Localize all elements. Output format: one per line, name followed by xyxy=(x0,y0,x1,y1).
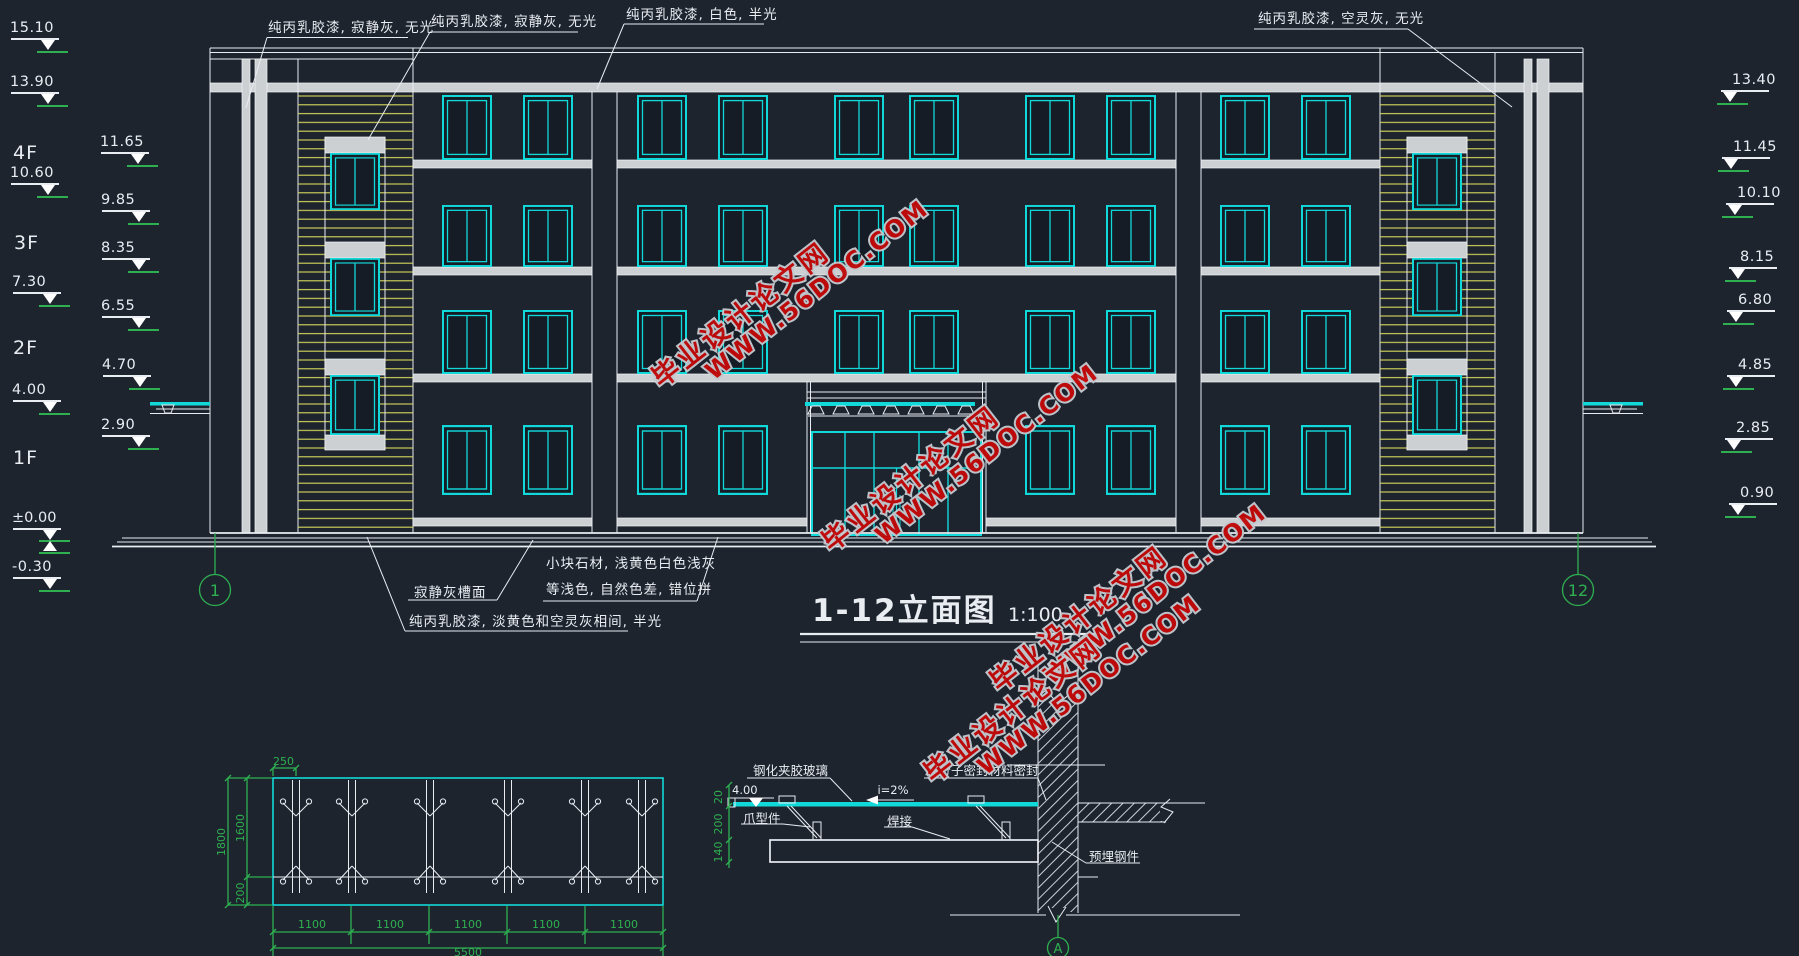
marker-value: 11.45 xyxy=(1733,139,1777,155)
marker-green-line xyxy=(1723,388,1754,390)
svg-text:250: 250 xyxy=(273,755,294,768)
marker-triangle-icon xyxy=(132,260,146,270)
marker-value: 13.90 xyxy=(10,74,54,90)
marker-green-line xyxy=(39,590,70,592)
plan-dimensions xyxy=(225,765,666,956)
elevation-marker: -0.30 xyxy=(13,577,73,611)
marker-green-line xyxy=(39,413,70,415)
marker-green-line xyxy=(37,105,68,107)
elevation-marker: 6.55 xyxy=(102,316,162,350)
marker-value: 8.15 xyxy=(1740,249,1774,265)
marker-green-line xyxy=(128,223,159,225)
marker-triangle-icon xyxy=(132,318,146,328)
marker-value: 2.90 xyxy=(101,417,135,433)
marker-triangle-icon xyxy=(43,579,57,589)
marker-value: 9.85 xyxy=(101,192,135,208)
floor-label: 3F xyxy=(14,232,39,254)
marker-green-line xyxy=(37,51,68,53)
marker-triangle-icon xyxy=(1731,505,1745,515)
elevation-marker: 6.80 xyxy=(1727,310,1787,344)
floor-label: 4F xyxy=(13,142,38,164)
floor-label-text: 2F xyxy=(13,337,38,359)
finish-label-1: 纯丙乳胶漆, 寂静灰, 无光 xyxy=(268,16,434,36)
svg-text:A: A xyxy=(1054,942,1063,956)
stair-window-strip-right xyxy=(1407,137,1467,450)
svg-text:i=2%: i=2% xyxy=(877,783,908,797)
marker-value: 4.00 xyxy=(12,382,46,398)
marker-triangle-icon xyxy=(41,40,55,50)
marker-triangle-icon xyxy=(41,185,55,195)
marker-value: 0.90 xyxy=(1740,485,1774,501)
marker-triangle-icon xyxy=(1728,205,1742,215)
elevation-marker: 2.85 xyxy=(1725,438,1785,472)
elevation-marker: 9.85 xyxy=(102,210,162,244)
svg-text:200: 200 xyxy=(712,814,725,835)
svg-text:200: 200 xyxy=(234,883,247,904)
marker-value: 11.65 xyxy=(100,134,144,150)
marker-value: 2.85 xyxy=(1736,420,1770,436)
stone-label-1: 小块石材, 浅黄色白色浅灰 xyxy=(546,552,716,572)
marker-value: 15.10 xyxy=(10,20,54,36)
marker-green-line xyxy=(127,165,158,167)
svg-text:1600: 1600 xyxy=(234,814,247,842)
marker-green-line xyxy=(39,552,70,554)
marker-value: 8.35 xyxy=(101,240,135,256)
marker-green-line xyxy=(1723,323,1754,325)
glass-label: 钢化夹胶玻璃 xyxy=(753,760,828,779)
marker-green-line xyxy=(1717,103,1748,105)
svg-text:5500: 5500 xyxy=(454,946,482,956)
marker-value: 6.80 xyxy=(1738,292,1772,308)
marker-green-line xyxy=(1722,216,1753,218)
elevation-marker: 15.10 xyxy=(11,38,71,72)
marker-triangle-icon xyxy=(1727,440,1741,450)
elevation-marker: 13.90 xyxy=(11,92,71,126)
marker-green-line xyxy=(128,448,159,450)
stair-window-strip-left xyxy=(325,137,385,450)
marker-green-line xyxy=(128,271,159,273)
marker-value: 4.85 xyxy=(1738,357,1772,373)
marker-green-line xyxy=(1718,170,1749,172)
canopy-section-detail: 20 200 140 4.00 i=2% A xyxy=(712,658,1240,956)
floor-label: 2F xyxy=(13,337,38,359)
finish-label-2: 纯丙乳胶漆, 寂静灰, 无光 xyxy=(431,10,597,30)
marker-value: 10.60 xyxy=(10,165,54,181)
groove-label: 寂静灰槽面 xyxy=(414,581,487,601)
weld-label: 焊接 xyxy=(887,811,912,830)
marker-triangle-down xyxy=(43,530,57,540)
marker-triangle-icon xyxy=(131,154,145,164)
floor-label-text: 4F xyxy=(13,142,38,164)
svg-text:1100: 1100 xyxy=(610,918,638,931)
marker-triangle-icon xyxy=(1723,92,1737,102)
canopy-right xyxy=(1583,402,1643,414)
marker-green-line xyxy=(128,329,159,331)
elevation-marker: 8.35 xyxy=(102,258,162,292)
finish-label-3: 纯丙乳胶漆, 白色, 半光 xyxy=(626,3,778,23)
axis-bubble-12: 12 xyxy=(1563,533,1594,606)
svg-text:140: 140 xyxy=(712,842,725,863)
elevation-marker: 4.70 xyxy=(103,375,163,409)
elevation-marker: 0.90 xyxy=(1729,503,1789,537)
svg-text:1800: 1800 xyxy=(215,828,228,856)
marker-triangle-icon xyxy=(132,212,146,222)
entrance-canopy-glass xyxy=(805,402,975,406)
marker-value: 7.30 xyxy=(12,274,46,290)
svg-text:1100: 1100 xyxy=(532,918,560,931)
axis-bubble-1: 1 xyxy=(200,533,231,606)
embed-label: 预埋钢件 xyxy=(1089,846,1139,865)
marker-triangle-icon xyxy=(43,402,57,412)
window-grid xyxy=(443,96,1350,494)
marker-triangle-icon xyxy=(41,94,55,104)
elevation-marker: 10.10 xyxy=(1726,203,1786,237)
claw-label: 爪型件 xyxy=(743,808,781,827)
elevation-marker: 2.90 xyxy=(102,435,162,469)
svg-text:4.00: 4.00 xyxy=(732,783,758,797)
floor-label-text: 3F xyxy=(14,232,39,254)
marker-triangle-icon xyxy=(1724,159,1738,169)
canopy-plan-detail: 250 1800 1600 200 1100 1100 1100 1100 11… xyxy=(215,755,666,956)
finish-label-right: 纯丙乳胶漆, 空灵灰, 无光 xyxy=(1258,7,1424,27)
elevation-marker: 4.00 xyxy=(13,400,73,434)
svg-text:1: 1 xyxy=(210,581,220,600)
marker-green-line xyxy=(1725,280,1756,282)
marker-triangle-icon xyxy=(1729,377,1743,387)
marker-value: 10.10 xyxy=(1737,185,1781,201)
marker-triangle-icon xyxy=(43,294,57,304)
svg-text:1100: 1100 xyxy=(376,918,404,931)
marker-triangle-icon xyxy=(1729,312,1743,322)
marker-green-line xyxy=(39,305,70,307)
elevation-marker: 4.85 xyxy=(1727,375,1787,409)
elevation-marker: 10.60 xyxy=(11,183,71,217)
marker-green-line xyxy=(129,388,160,390)
elevation-marker: 7.30 xyxy=(13,292,73,326)
stone-label-2: 等浅色, 自然色差, 错位拼 xyxy=(546,578,712,598)
marker-triangle-icon xyxy=(1731,269,1745,279)
marker-value: ±0.00 xyxy=(12,510,72,544)
svg-text:20: 20 xyxy=(712,790,725,804)
drawing-title: 1-12立面图 xyxy=(812,585,997,630)
elevation-marker: 11.65 xyxy=(101,152,161,186)
floor-label: 1F xyxy=(13,447,38,469)
marker-green-line xyxy=(1721,451,1752,453)
marker-green-line xyxy=(37,196,68,198)
marker-triangle-up xyxy=(43,541,57,551)
marker-triangle-icon xyxy=(132,437,146,447)
marker-green-line xyxy=(1725,516,1756,518)
floor-label-text: 1F xyxy=(13,447,38,469)
elevation-marker: 13.40 xyxy=(1721,90,1781,124)
svg-text:12: 12 xyxy=(1568,581,1588,600)
svg-text:1100: 1100 xyxy=(454,918,482,931)
paint-label: 纯丙乳胶漆, 淡黄色和空灵灰相间, 半光 xyxy=(409,610,662,630)
marker-value: 13.40 xyxy=(1732,72,1776,88)
marker-triangle-icon xyxy=(133,377,147,387)
svg-text:1100: 1100 xyxy=(298,918,326,931)
cad-canvas[interactable]: 1 12 xyxy=(0,0,1799,956)
marker-value: 6.55 xyxy=(101,298,135,314)
elevation-marker-zero: ±0.00 xyxy=(13,528,77,568)
marker-value: 4.70 xyxy=(102,357,136,373)
